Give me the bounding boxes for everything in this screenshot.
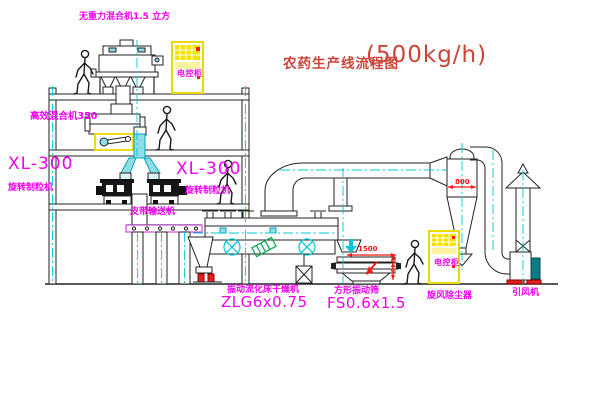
belt-conveyor (126, 225, 202, 232)
dimension-cyclone-inlet: 800 (455, 179, 470, 186)
person-figure-2 (156, 106, 175, 150)
fluid-bed-dryer (202, 211, 338, 254)
dimension-sieve-height: 745 (390, 259, 397, 273)
label-cyclone-name: 旋风除尘器 (427, 292, 472, 301)
label-granulator-right-model: XL-300 (176, 161, 241, 178)
label-granulator-right-name: 旋转制粒机 (185, 187, 230, 196)
label-dryer-model: ZLG6x0.75 (221, 295, 308, 310)
person-figure-4 (404, 240, 423, 284)
control-cabinet-2 (429, 231, 459, 283)
dryer-right-stand (296, 254, 312, 283)
person-figure-1 (74, 50, 93, 94)
label-granulator-left-name: 旋转制粒机 (8, 184, 53, 193)
granulator-left (96, 173, 134, 204)
page-title-capacity: (500kg/h) (366, 42, 487, 68)
label-gravity-mixer: 无重力混合机1.5 立方 (79, 13, 170, 22)
label-high-efficiency-mixer: 高效混合机350 (30, 112, 97, 122)
mixer-motor-box (95, 134, 133, 150)
label-belt-conveyor: 皮带输送机 (130, 208, 175, 217)
label-granulator-left-model: XL-300 (8, 156, 73, 173)
control-cabinet-1 (172, 42, 203, 93)
label-control-cabinet-1: 电控柜 (177, 70, 203, 78)
label-fan-name: 引风机 (512, 289, 539, 298)
mixer-feed-duct (116, 86, 130, 106)
label-control-cabinet-2: 电控柜 (434, 259, 460, 267)
flow-diagram-page: 农药生产线流程图 (500kg/h) 无重力混合机1.5 立方 电控柜 高效混合… (0, 0, 600, 403)
dimension-sieve-length: 1500 (358, 246, 377, 253)
induced-draft-fan (507, 252, 541, 284)
dryer-exhaust-duct (261, 157, 447, 216)
conveyor-support-legs (132, 232, 190, 284)
label-sieve-model: FS0.6x1.5 (327, 296, 406, 311)
